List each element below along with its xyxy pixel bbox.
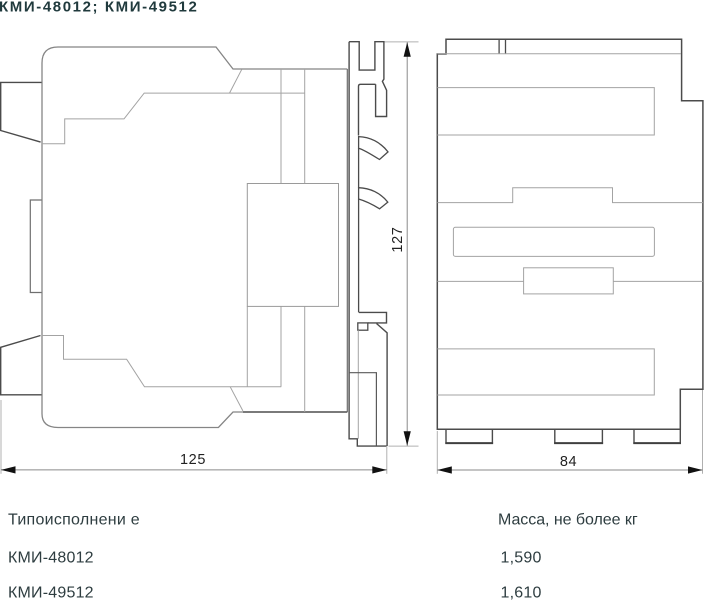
svg-text:КМИ-48012; КМИ-49512: КМИ-48012; КМИ-49512: [0, 0, 198, 16]
svg-text:КМИ-49512: КМИ-49512: [8, 585, 94, 602]
svg-text:Типоисполнени е: Типоисполнени е: [8, 511, 140, 528]
svg-text:Масса, не более кг: Масса, не более кг: [498, 511, 638, 528]
svg-text:1,590: 1,590: [501, 550, 542, 567]
svg-text:84: 84: [560, 454, 577, 470]
svg-text:1,610: 1,610: [501, 585, 542, 602]
svg-text:КМИ-48012: КМИ-48012: [8, 550, 94, 567]
svg-text:127: 127: [390, 227, 406, 253]
svg-text:125: 125: [180, 452, 206, 468]
